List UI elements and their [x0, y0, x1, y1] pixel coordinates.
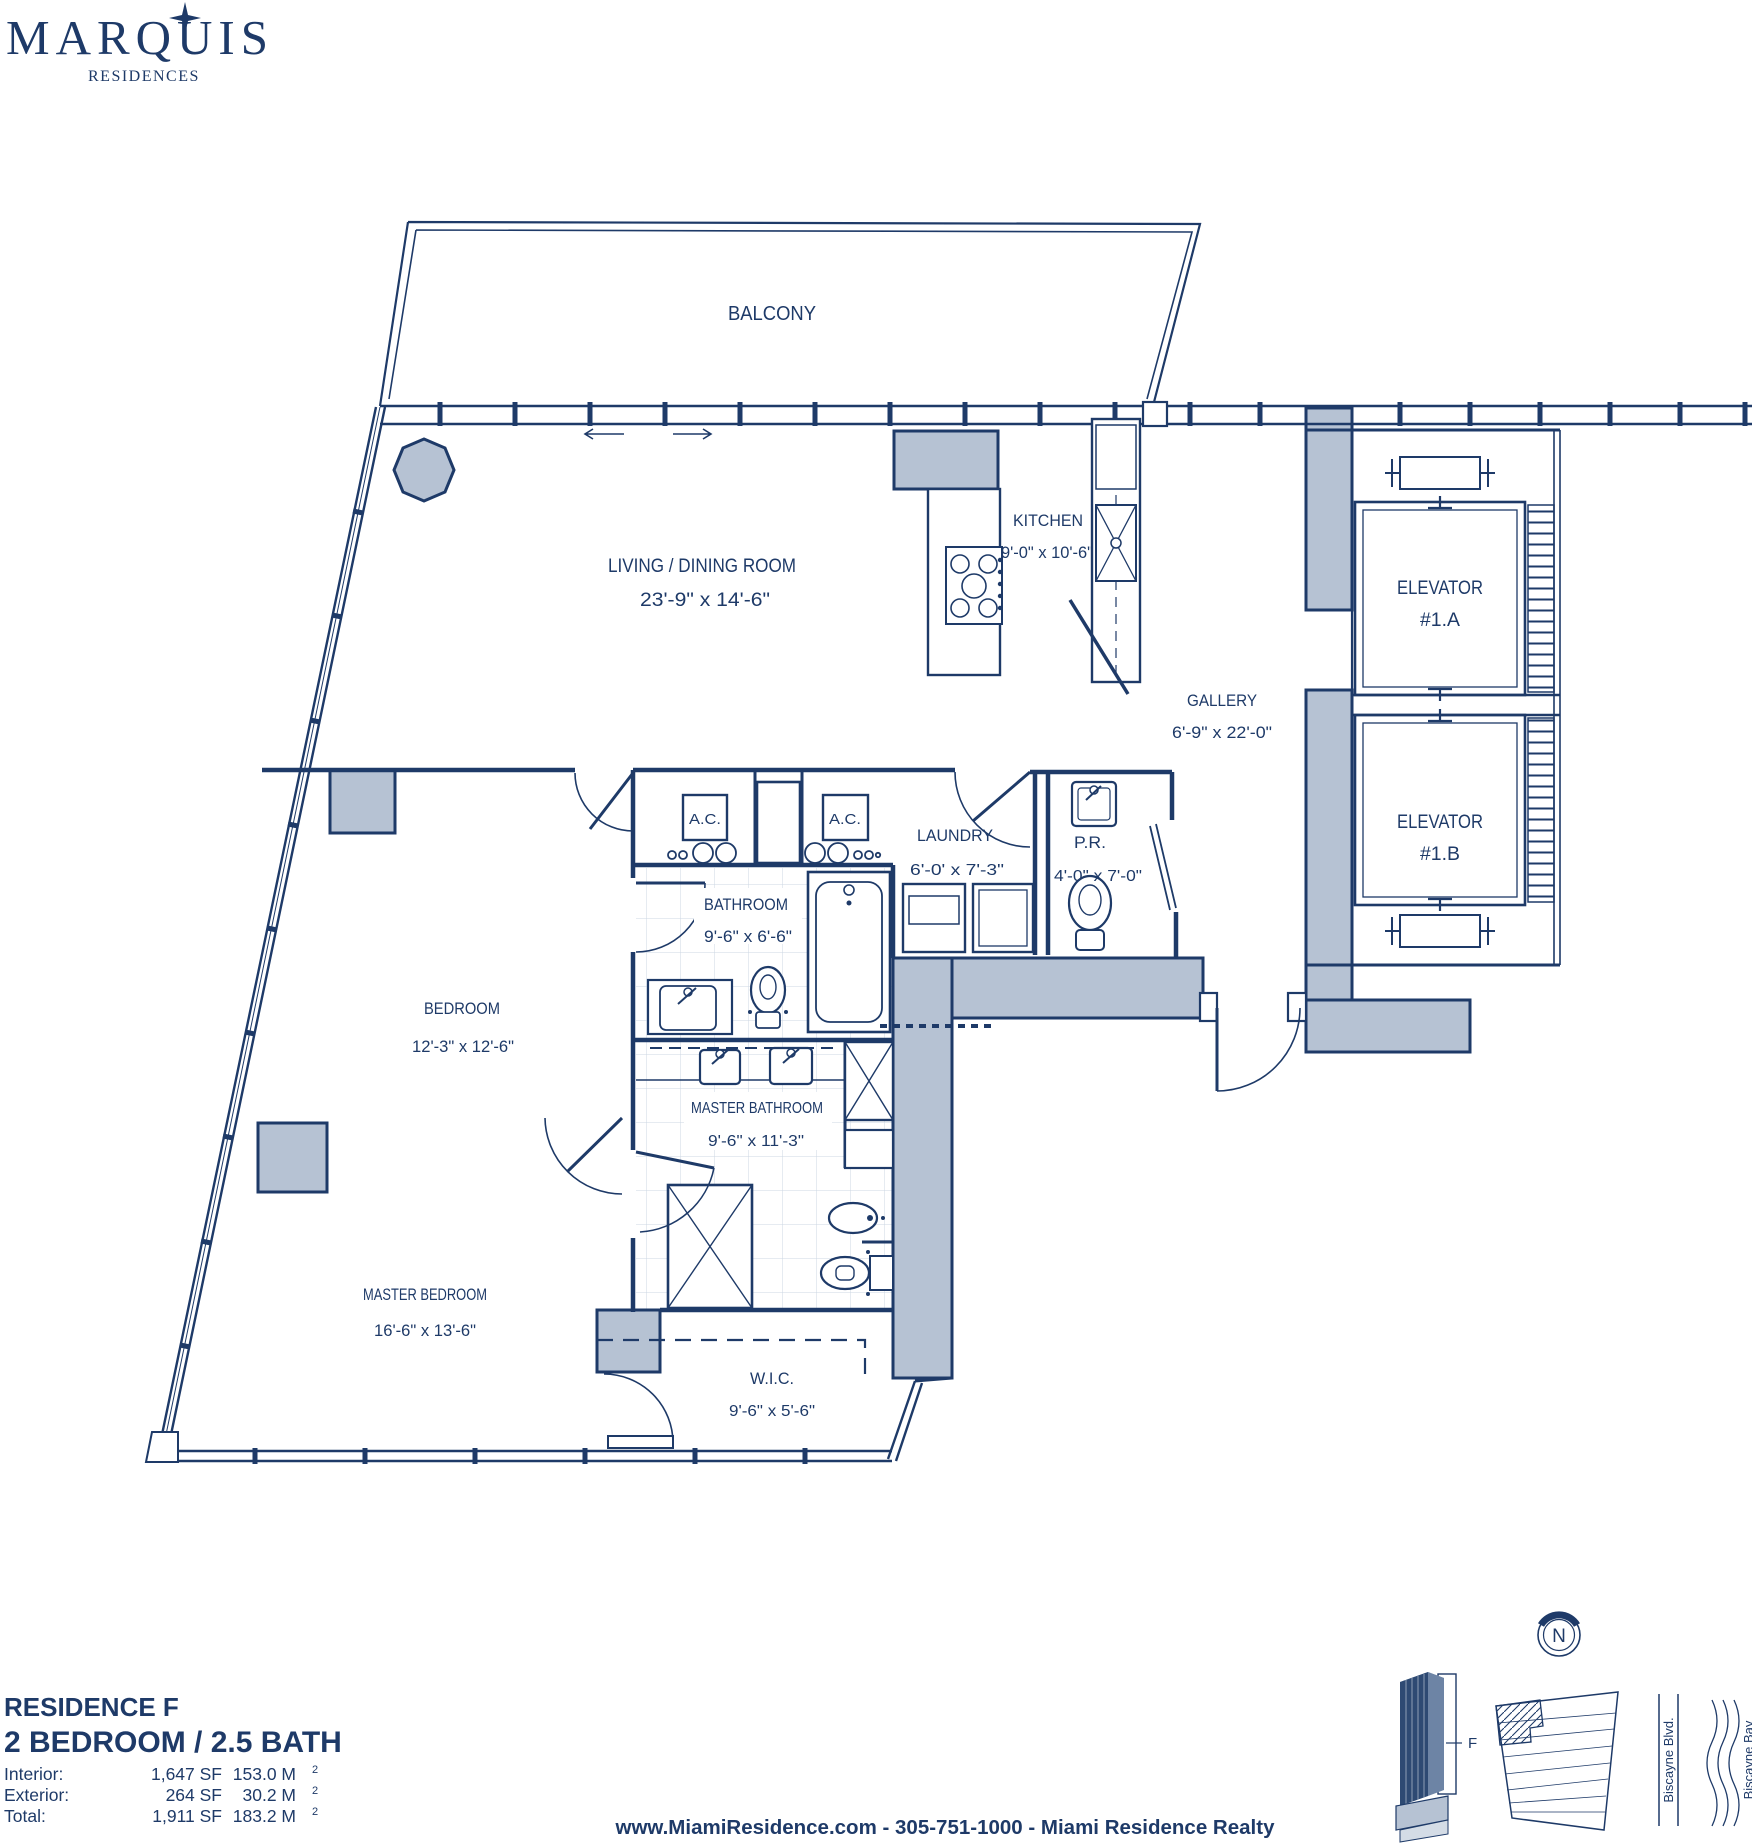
- kitchen-sink-icon: [1096, 505, 1136, 581]
- residence-info: RESIDENCE F 2 BEDROOM / 2.5 BATH Interio…: [4, 1692, 342, 1826]
- bathtub-icon: [808, 872, 890, 1032]
- row-sup: 2: [312, 1806, 318, 1818]
- toilet-icon: [1069, 876, 1111, 950]
- shaft-rail: [1528, 505, 1554, 692]
- room-label-living: LIVING / DINING ROOM: [608, 556, 796, 577]
- room-num-elevator-a: #1.A: [1420, 610, 1460, 631]
- row-sf: 1,647 SF: [151, 1764, 222, 1784]
- kitchen-island-counter: [894, 431, 998, 489]
- row-sup: 2: [312, 1764, 318, 1776]
- powder-room-door: [1150, 824, 1176, 910]
- room-label-bedroom: BEDROOM: [424, 999, 500, 1018]
- shear-wall-vertical: [893, 958, 952, 1378]
- powder-room-fixtures: [1069, 782, 1116, 950]
- room-label-ac-2: A.C.: [829, 811, 861, 828]
- street-biscayne-blvd: Biscayne Blvd.: [1661, 1717, 1676, 1802]
- room-dims-master-bedroom: 16'-6" x 13'-6": [374, 1321, 476, 1340]
- linen-closet: [845, 1130, 893, 1168]
- room-label-pr: P.R.: [1074, 833, 1106, 852]
- compass-icon: N: [1538, 1614, 1580, 1656]
- row-label: Exterior:: [4, 1785, 69, 1805]
- row-sf: 1,911 SF: [152, 1806, 222, 1826]
- locator-cluster: N F Biscayne Blvd. Biscayne Bay: [1396, 1614, 1752, 1842]
- shower-stall-icon: [668, 1185, 752, 1308]
- room-label-ac-1: A.C.: [689, 811, 721, 828]
- octagon-column: [394, 439, 454, 501]
- row-m: 153.0 M: [233, 1764, 296, 1784]
- room-label-gallery: GALLERY: [1187, 691, 1257, 710]
- room-label-master-bedroom: MASTER BEDROOM: [363, 1285, 487, 1304]
- room-label-elevator-b: ELEVATOR: [1397, 812, 1483, 833]
- bedroom-door: [575, 773, 633, 831]
- sink-icon: [1072, 782, 1116, 826]
- floorplan-page: MARQUIS RESIDENCES: [0, 0, 1752, 1846]
- core-wall: [1306, 1000, 1470, 1052]
- entry-door: [1200, 993, 1306, 1091]
- room-dims-bathroom: 9'-6" x 6'-6": [704, 927, 792, 946]
- table-row: Interior: 1,647 SF 153.0 M 2: [4, 1764, 318, 1784]
- room-label-elevator-a: ELEVATOR: [1397, 578, 1483, 599]
- table-row: Total: 1,911 SF 183.2 M 2: [4, 1806, 318, 1826]
- room-label-balcony: BALCONY: [728, 303, 816, 325]
- wic-door: [604, 1374, 673, 1448]
- room-dims-gallery: 6'-9" x 22'-0": [1172, 723, 1272, 742]
- column: [330, 770, 395, 833]
- row-sup: 2: [312, 1785, 318, 1797]
- room-dims-pr: 4'-0" x 7'-0": [1054, 868, 1142, 885]
- core-wall: [1306, 690, 1352, 1000]
- row-sf: 264 SF: [166, 1785, 222, 1805]
- room-dims-master-bathroom: 9'-6" x 11'-3": [708, 1133, 804, 1150]
- room-label-wic: W.I.C.: [750, 1369, 794, 1388]
- row-label: Total:: [4, 1806, 46, 1826]
- bay-waves-icon: [1707, 1700, 1739, 1826]
- room-dims-kitchen: 9'-0" x 10'-6": [1001, 543, 1093, 562]
- compass-n: N: [1552, 1626, 1566, 1647]
- floorplan-canvas: MARQUIS RESIDENCES: [0, 0, 1752, 1846]
- master-bedroom-door: [545, 1118, 622, 1194]
- slider-arrow-icons: [585, 429, 711, 439]
- room-dims-bedroom: 12'-3" x 12'-6": [412, 1037, 514, 1056]
- room-label-laundry: LAUNDRY: [917, 826, 993, 845]
- row-m: 30.2 M: [243, 1785, 297, 1805]
- room-label-kitchen: KITCHEN: [1013, 511, 1083, 530]
- residence-title: RESIDENCE F: [4, 1692, 179, 1722]
- room-num-elevator-b: #1.B: [1420, 844, 1460, 865]
- unit-f-label: F: [1468, 1735, 1477, 1752]
- logo-title: MARQUIS: [6, 10, 274, 65]
- marquis-logo: MARQUIS RESIDENCES: [6, 2, 274, 85]
- building-tower-icon: F: [1396, 1672, 1477, 1842]
- shower-icon: [845, 1042, 893, 1120]
- room-label-bathroom: BATHROOM: [704, 895, 788, 914]
- elevator-lobby-bench: [1385, 457, 1495, 947]
- sink-icon: [648, 980, 732, 1034]
- room-dims-wic: 9'-6" x 5'-6": [729, 1403, 815, 1420]
- table-row: Exterior: 264 SF 30.2 M 2: [4, 1785, 318, 1805]
- row-label: Interior:: [4, 1764, 63, 1784]
- washer-dryer-icons: [903, 884, 1033, 952]
- row-m: 183.2 M: [233, 1806, 296, 1826]
- room-dims-laundry: 6'-0' x 7'-3": [910, 862, 1004, 879]
- room-dims-living: 23'-9" x 14'-6": [640, 590, 770, 611]
- street-biscayne-bay: Biscayne Bay: [1741, 1720, 1752, 1799]
- residence-layout: 2 BEDROOM / 2.5 BATH: [4, 1726, 342, 1759]
- footer-contact: www.MiamiResidence.com - 305-751-1000 - …: [615, 1816, 1276, 1839]
- keyplan-diagram: [1496, 1692, 1618, 1830]
- street-labels: Biscayne Blvd. Biscayne Bay: [1659, 1694, 1752, 1826]
- logo-subtitle: RESIDENCES: [88, 68, 200, 85]
- area-table: Interior: 1,647 SF 153.0 M 2 Exterior: 2…: [4, 1764, 318, 1826]
- shaft-rail: [1528, 718, 1554, 902]
- elevator-shaft-b: [1355, 709, 1525, 911]
- core-wall: [1306, 408, 1352, 610]
- column: [258, 1123, 327, 1192]
- cooktop-icon: [946, 547, 1002, 624]
- room-label-master-bathroom: MASTER BATHROOM: [691, 1100, 823, 1117]
